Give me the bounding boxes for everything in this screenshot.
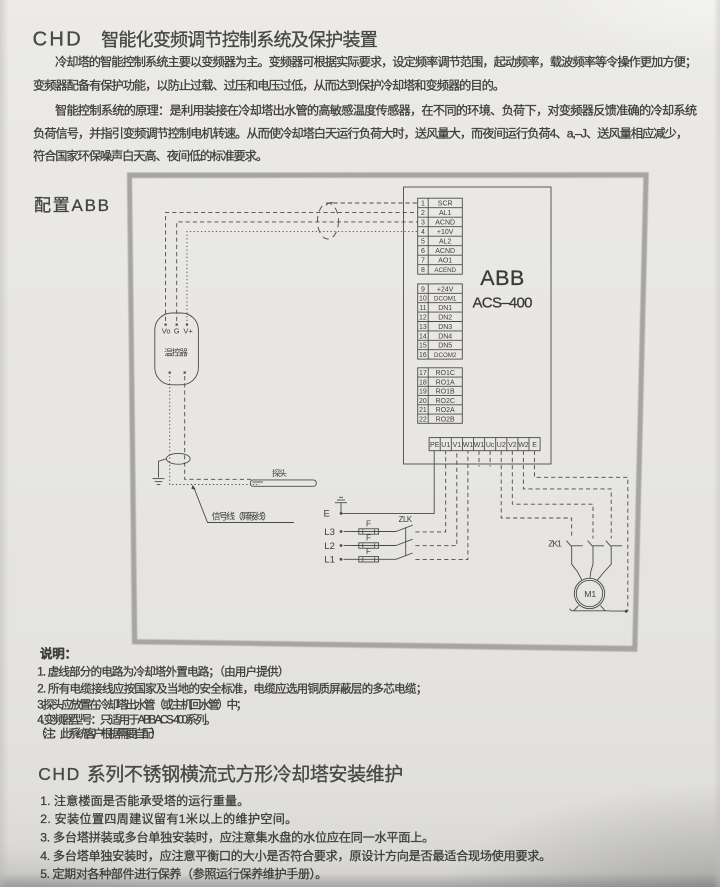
svg-text:2: 2 — [421, 210, 425, 217]
svg-text:RO2A: RO2A — [436, 407, 455, 414]
svg-text:8: 8 — [421, 267, 425, 274]
svg-text:21: 21 — [419, 407, 427, 414]
svg-text:+24V: +24V — [437, 286, 454, 293]
svg-text:信号线（屏蔽线）: 信号线（屏蔽线） — [212, 511, 272, 522]
svg-text:+10V: +10V — [437, 229, 454, 236]
svg-text:冷却塔的智能控制系统主要以变频器为主。变频器可根据实际要求，: 冷却塔的智能控制系统主要以变频器为主。变频器可根据实际要求，设定频率调节范围，起… — [55, 54, 697, 69]
svg-text:1. 虚线部分的电路为冷却塔外置电路；（由用户提供）: 1. 虚线部分的电路为冷却塔外置电路；（由用户提供） — [37, 665, 289, 679]
svg-text:PE: PE — [430, 442, 440, 449]
svg-text:Uc: Uc — [486, 442, 495, 449]
svg-text:（注：此系统客户根据需要自配）: （注：此系统客户根据需要自配） — [35, 727, 162, 741]
svg-text:3. 探头应放置在冷却塔出水管（或主机回水管）中；: 3. 探头应放置在冷却塔出水管（或主机回水管）中； — [37, 698, 247, 712]
svg-text:探头: 探头 — [272, 468, 287, 478]
svg-text:CHD: CHD — [38, 764, 80, 784]
svg-text:SCR: SCR — [438, 201, 453, 208]
svg-text:W1: W1 — [474, 442, 485, 449]
svg-text:ACEND: ACEND — [434, 267, 456, 274]
svg-text:Vo: Vo — [162, 327, 171, 336]
svg-text:变频器配备有保护功能，以防止过载、过压和电压过低，从而达到保: 变频器配备有保护功能，以防止过载、过压和电压过低，从而达到保护冷却塔和变频器的目… — [33, 78, 505, 93]
svg-text:ACS–400: ACS–400 — [473, 295, 533, 312]
svg-text:L3: L3 — [324, 527, 335, 538]
svg-text:3: 3 — [421, 220, 425, 227]
svg-text:温控器: 温控器 — [164, 347, 188, 357]
svg-text:CHD: CHD — [33, 28, 84, 50]
svg-text:7: 7 — [421, 258, 425, 265]
svg-text:DN2: DN2 — [438, 315, 452, 322]
svg-text:18: 18 — [419, 379, 427, 386]
svg-text:负荷信号，并指引变频调节控制电机转速。从而使冷却塔白天运行负: 负荷信号，并指引变频调节控制电机转速。从而使冷却塔白天运行负荷大时，送风量大，而… — [33, 126, 688, 141]
svg-text:13: 13 — [419, 324, 427, 331]
svg-text:ACND: ACND — [435, 248, 455, 255]
svg-text:22: 22 — [419, 416, 427, 423]
svg-text:12: 12 — [419, 315, 427, 322]
svg-text:AL1: AL1 — [439, 210, 452, 217]
svg-text:RO1B: RO1B — [436, 389, 455, 396]
svg-text:2. 安装位置四周建议留有1米以上的维护空间。: 2. 安装位置四周建议留有1米以上的维护空间。 — [40, 811, 297, 826]
svg-text:16: 16 — [419, 352, 427, 359]
svg-text:说明：: 说明： — [40, 646, 77, 661]
svg-text:19: 19 — [419, 389, 427, 396]
svg-text:4. 多台塔单独安装时，应注意平衡口的大小是否符合要求，原设: 4. 多台塔单独安装时，应注意平衡口的大小是否符合要求，原设计方向是否最适合现场… — [40, 848, 551, 863]
svg-text:1. 注意楼面是否能承受塔的运行重量。: 1. 注意楼面是否能承受塔的运行重量。 — [40, 793, 249, 808]
svg-text:W2: W2 — [518, 442, 529, 449]
svg-text:配置ABB: 配置ABB — [34, 196, 109, 215]
svg-text:F: F — [366, 547, 371, 556]
svg-text:6: 6 — [421, 248, 425, 255]
svg-text:DN5: DN5 — [438, 343, 452, 350]
svg-text:G: G — [174, 327, 180, 336]
svg-text:ZLK: ZLK — [399, 515, 413, 524]
svg-text:10: 10 — [419, 296, 427, 303]
svg-text:V+: V+ — [183, 327, 193, 336]
svg-text:ABB: ABB — [480, 266, 525, 290]
svg-text:DN1: DN1 — [438, 305, 452, 312]
svg-text:智能控制系统的原理：是利用装接在冷却塔出水管的高敏感温度传感: 智能控制系统的原理：是利用装接在冷却塔出水管的高敏感温度传感器，在不同的环境、负… — [55, 103, 697, 118]
svg-text:4. 变频器型号：只适用于ABB ACS-400系列。: 4. 变频器型号：只适用于ABB ACS-400系列。 — [37, 713, 216, 727]
svg-text:DN4: DN4 — [438, 333, 452, 340]
svg-text:4: 4 — [421, 229, 425, 236]
svg-text:1: 1 — [421, 201, 425, 208]
svg-text:5. 定期对各种部件进行保养（参照运行保养维护手册）。: 5. 定期对各种部件进行保养（参照运行保养维护手册）。 — [40, 866, 327, 881]
svg-text:ZK1: ZK1 — [548, 539, 562, 549]
svg-text:U2: U2 — [497, 442, 506, 449]
svg-text:W1: W1 — [463, 442, 474, 449]
svg-text:RO1A: RO1A — [436, 379, 455, 386]
svg-text:AO1: AO1 — [438, 258, 452, 265]
svg-text:20: 20 — [419, 398, 427, 405]
svg-text:9: 9 — [421, 286, 425, 293]
svg-text:V1: V1 — [453, 442, 462, 449]
svg-text:14: 14 — [419, 333, 427, 340]
svg-text:L2: L2 — [324, 541, 335, 552]
svg-text:智能化变频调节控制系统及保护装置: 智能化变频调节控制系统及保护装置 — [101, 30, 378, 50]
svg-text:DN3: DN3 — [438, 324, 452, 331]
svg-text:L1: L1 — [324, 555, 335, 566]
svg-text:11: 11 — [419, 305, 426, 312]
svg-text:系列不锈钢横流式方形冷却塔安装维护: 系列不锈钢横流式方形冷却塔安装维护 — [87, 764, 404, 786]
svg-text:RO2C: RO2C — [435, 398, 454, 405]
svg-text:3. 多台塔拼装或多台单独安装时，应注意集水盘的水位应在同一: 3. 多台塔拼装或多台单独安装时，应注意集水盘的水位应在同一水平面上。 — [40, 830, 434, 845]
svg-text:15: 15 — [419, 343, 427, 350]
svg-text:RO2B: RO2B — [436, 416, 455, 423]
svg-text:DCOM1: DCOM1 — [434, 296, 457, 303]
svg-text:V2: V2 — [508, 442, 517, 449]
svg-text:F: F — [366, 519, 371, 528]
svg-text:AL2: AL2 — [439, 239, 452, 246]
svg-text:E: E — [532, 442, 537, 449]
svg-text:ACND: ACND — [435, 220, 455, 227]
svg-text:RO1C: RO1C — [435, 370, 454, 377]
svg-text:符合国家环保噪声白天高、夜间低的标准要求。: 符合国家环保噪声白天高、夜间低的标准要求。 — [33, 148, 268, 163]
svg-text:2. 所有电缆接线应按国家及当地的安全标准，电缆应选用铜质屏: 2. 所有电缆接线应按国家及当地的安全标准，电缆应选用铜质屏蔽层的多芯电缆； — [37, 682, 427, 696]
svg-text:5: 5 — [421, 239, 425, 246]
svg-text:E: E — [324, 508, 330, 519]
svg-text:17: 17 — [419, 370, 427, 377]
svg-text:U1: U1 — [441, 442, 450, 449]
svg-text:M1: M1 — [584, 589, 596, 599]
svg-text:F: F — [366, 533, 371, 542]
svg-text:DCOM2: DCOM2 — [434, 352, 457, 359]
